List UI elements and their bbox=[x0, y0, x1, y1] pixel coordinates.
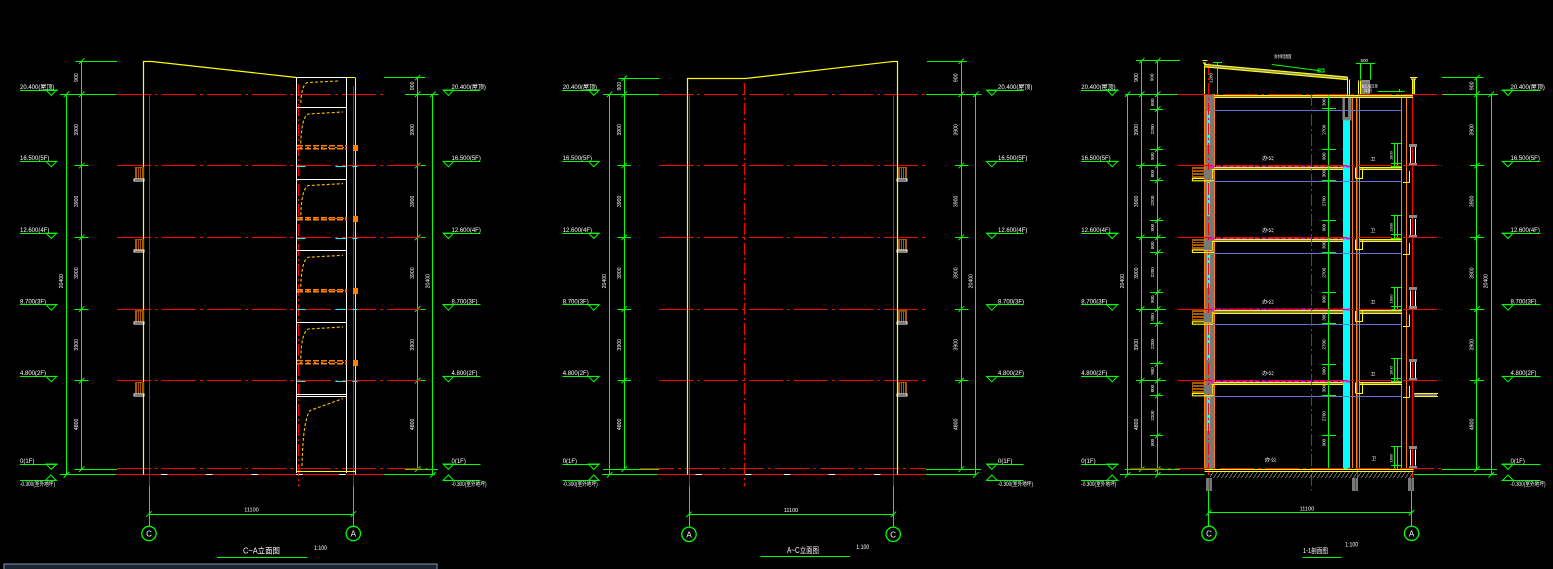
svg-text:卫: 卫 bbox=[1371, 156, 1377, 161]
svg-text:办公: 办公 bbox=[1262, 370, 1274, 377]
svg-text:900: 900 bbox=[1150, 223, 1155, 231]
svg-text:11100: 11100 bbox=[244, 508, 258, 514]
svg-text:900: 900 bbox=[1150, 295, 1155, 303]
svg-text:3900: 3900 bbox=[617, 267, 623, 279]
svg-text:4.800(2F): 4.800(2F) bbox=[1081, 371, 1107, 377]
svg-text:0(1F): 0(1F) bbox=[1511, 459, 1525, 465]
svg-text:12.600(4F): 12.600(4F) bbox=[452, 228, 481, 234]
svg-text:4800: 4800 bbox=[410, 419, 416, 431]
svg-text:1800: 1800 bbox=[1388, 150, 1393, 160]
svg-text:3900: 3900 bbox=[410, 267, 416, 279]
svg-text:3900: 3900 bbox=[1469, 267, 1475, 279]
svg-text:20.400(屋顶): 20.400(屋顶) bbox=[998, 84, 1032, 91]
svg-text:800: 800 bbox=[1150, 313, 1155, 321]
svg-text:2700: 2700 bbox=[1321, 339, 1326, 350]
svg-text:1:100: 1:100 bbox=[1345, 543, 1359, 549]
svg-text:防水保温屋面: 防水保温屋面 bbox=[1274, 53, 1291, 60]
svg-text:2700: 2700 bbox=[1321, 267, 1326, 278]
svg-text:3900: 3900 bbox=[617, 339, 623, 351]
svg-text:900: 900 bbox=[954, 73, 960, 82]
svg-text:2200: 2200 bbox=[1150, 267, 1155, 278]
svg-text:A~C立面图: A~C立面图 bbox=[787, 545, 819, 555]
svg-text:4800: 4800 bbox=[74, 419, 80, 431]
svg-text:0(1F): 0(1F) bbox=[452, 459, 466, 465]
svg-text:3900: 3900 bbox=[74, 267, 80, 279]
svg-text:20400: 20400 bbox=[1120, 274, 1126, 289]
svg-text:8.700(3F): 8.700(3F) bbox=[998, 300, 1024, 306]
svg-text:4.800(2F): 4.800(2F) bbox=[563, 371, 589, 377]
svg-text:800: 800 bbox=[1150, 384, 1155, 392]
svg-text:12.600(4F): 12.600(4F) bbox=[20, 228, 49, 234]
svg-text:详图: 详图 bbox=[1364, 87, 1372, 94]
svg-text:C~A立面图: C~A立面图 bbox=[243, 546, 280, 556]
svg-text:12.600(4F): 12.600(4F) bbox=[1511, 228, 1540, 234]
svg-text:300: 300 bbox=[1321, 241, 1326, 249]
svg-text:900: 900 bbox=[1321, 223, 1326, 231]
svg-text:3900: 3900 bbox=[1469, 124, 1475, 136]
svg-text:4.800(2F): 4.800(2F) bbox=[1511, 371, 1537, 377]
svg-text:20.400(屋顶): 20.400(屋顶) bbox=[563, 84, 597, 91]
svg-text:4.800(2F): 4.800(2F) bbox=[452, 371, 478, 377]
svg-text:8.700(3F): 8.700(3F) bbox=[1511, 300, 1537, 306]
svg-text:900: 900 bbox=[1134, 73, 1140, 82]
svg-text:4800: 4800 bbox=[954, 419, 960, 431]
svg-text:20400: 20400 bbox=[969, 274, 975, 289]
svg-text:20400: 20400 bbox=[1484, 274, 1490, 289]
svg-text:16.500(5F): 16.500(5F) bbox=[1511, 156, 1540, 162]
svg-text:3900: 3900 bbox=[1134, 196, 1140, 208]
svg-text:卫: 卫 bbox=[1371, 371, 1377, 376]
svg-text:0(1F): 0(1F) bbox=[1081, 459, 1095, 465]
svg-text:办公: 办公 bbox=[1262, 155, 1274, 162]
svg-text:C: C bbox=[1206, 529, 1212, 538]
svg-text:3900: 3900 bbox=[617, 124, 623, 136]
svg-text:1800: 1800 bbox=[1388, 365, 1393, 375]
svg-text:20400: 20400 bbox=[59, 274, 65, 289]
svg-text:3900: 3900 bbox=[410, 196, 416, 208]
svg-text:800: 800 bbox=[1150, 169, 1155, 177]
svg-text:900: 900 bbox=[1150, 152, 1155, 160]
svg-text:3900: 3900 bbox=[74, 124, 80, 136]
svg-text:2700: 2700 bbox=[1321, 411, 1326, 422]
svg-text:8.700(3F): 8.700(3F) bbox=[20, 300, 46, 306]
svg-text:900: 900 bbox=[1321, 152, 1326, 160]
svg-text:11100: 11100 bbox=[1300, 506, 1314, 512]
svg-text:3900: 3900 bbox=[1469, 339, 1475, 351]
svg-text:16.500(5F): 16.500(5F) bbox=[452, 156, 481, 162]
svg-text:16.500(5F): 16.500(5F) bbox=[20, 156, 49, 162]
svg-text:20.400(屋顶): 20.400(屋顶) bbox=[452, 84, 486, 91]
svg-text:300: 300 bbox=[1321, 384, 1326, 392]
svg-text:800: 800 bbox=[1150, 241, 1155, 249]
svg-text:12.600(4F): 12.600(4F) bbox=[998, 228, 1027, 234]
svg-text:500: 500 bbox=[1361, 58, 1369, 63]
svg-text:A: A bbox=[686, 530, 692, 539]
svg-text:A: A bbox=[1409, 529, 1415, 538]
svg-text:20.400(屋顶): 20.400(屋顶) bbox=[1511, 84, 1545, 91]
svg-text:900: 900 bbox=[1321, 438, 1326, 446]
svg-text:900: 900 bbox=[1149, 73, 1154, 81]
svg-text:8.700(3F): 8.700(3F) bbox=[563, 300, 589, 306]
svg-text:办公: 办公 bbox=[1262, 227, 1274, 234]
svg-text:3900: 3900 bbox=[410, 339, 416, 351]
svg-text:3900: 3900 bbox=[1134, 267, 1140, 279]
svg-text:-0.300(室外地坪): -0.300(室外地坪) bbox=[1081, 480, 1116, 488]
svg-text:4.800(2F): 4.800(2F) bbox=[20, 371, 46, 377]
svg-text:3900: 3900 bbox=[1134, 124, 1140, 136]
svg-text:3900: 3900 bbox=[410, 124, 416, 136]
svg-text:1:100: 1:100 bbox=[856, 545, 870, 551]
svg-text:-0.300(室外地坪): -0.300(室外地坪) bbox=[998, 480, 1033, 488]
svg-text:4800: 4800 bbox=[1469, 419, 1475, 431]
svg-text:卫: 卫 bbox=[1371, 228, 1377, 233]
svg-text:1:100: 1:100 bbox=[314, 546, 328, 552]
svg-text:4800: 4800 bbox=[617, 419, 623, 431]
svg-text:900: 900 bbox=[1150, 367, 1155, 375]
svg-text:20400: 20400 bbox=[602, 274, 608, 289]
svg-text:8.700(3F): 8.700(3F) bbox=[1081, 300, 1107, 306]
svg-text:20.400(屋顶): 20.400(屋顶) bbox=[1081, 84, 1115, 91]
svg-text:900: 900 bbox=[617, 82, 623, 91]
svg-text:900: 900 bbox=[1469, 81, 1475, 90]
svg-text:3900: 3900 bbox=[74, 339, 80, 351]
svg-text:1800: 1800 bbox=[1388, 294, 1393, 304]
svg-text:12.600(4F): 12.600(4F) bbox=[563, 228, 592, 234]
svg-text:1280: 1280 bbox=[1208, 72, 1213, 83]
svg-text:卫: 卫 bbox=[1371, 456, 1377, 461]
svg-text:3900: 3900 bbox=[617, 196, 623, 208]
svg-text:3900: 3900 bbox=[954, 196, 960, 208]
svg-text:0(1F): 0(1F) bbox=[998, 459, 1012, 465]
svg-text:办公: 办公 bbox=[1262, 299, 1274, 306]
svg-text:16.500(5F): 16.500(5F) bbox=[563, 156, 592, 162]
svg-text:1-1剖面图: 1-1剖面图 bbox=[1303, 546, 1328, 555]
svg-text:-0.300(室外地坪): -0.300(室外地坪) bbox=[452, 480, 487, 488]
svg-text:3900: 3900 bbox=[954, 339, 960, 351]
svg-text:900: 900 bbox=[410, 81, 416, 90]
svg-text:3900: 3900 bbox=[1469, 196, 1475, 208]
svg-text:C: C bbox=[146, 530, 152, 539]
svg-text:0(1F): 0(1F) bbox=[20, 459, 34, 465]
svg-text:-0.300(室外地坪): -0.300(室外地坪) bbox=[1511, 480, 1546, 488]
svg-text:2700: 2700 bbox=[1321, 196, 1326, 207]
svg-text:0(1F): 0(1F) bbox=[563, 459, 577, 465]
svg-text:3900: 3900 bbox=[954, 124, 960, 136]
svg-text:2700: 2700 bbox=[1321, 124, 1326, 135]
svg-text:A: A bbox=[351, 530, 357, 539]
svg-text:1800: 1800 bbox=[1388, 453, 1393, 463]
svg-text:2200: 2200 bbox=[1150, 410, 1155, 421]
svg-text:16.500(5F): 16.500(5F) bbox=[1081, 156, 1110, 162]
svg-text:-0.300(室外地坪): -0.300(室外地坪) bbox=[20, 480, 55, 488]
svg-text:8.700(3F): 8.700(3F) bbox=[452, 300, 478, 306]
svg-text:3900: 3900 bbox=[954, 267, 960, 279]
svg-text:300: 300 bbox=[1321, 169, 1326, 177]
svg-text:300: 300 bbox=[1321, 98, 1326, 106]
svg-text:4800: 4800 bbox=[1134, 419, 1140, 431]
svg-text:20400: 20400 bbox=[426, 274, 432, 289]
svg-text:20.400(屋顶): 20.400(屋顶) bbox=[20, 84, 54, 91]
svg-text:900: 900 bbox=[74, 73, 80, 82]
svg-text:900: 900 bbox=[1321, 295, 1326, 303]
svg-text:4.800(2F): 4.800(2F) bbox=[998, 371, 1024, 377]
svg-text:11100: 11100 bbox=[784, 508, 798, 514]
svg-text:3900: 3900 bbox=[74, 196, 80, 208]
svg-text:1800: 1800 bbox=[1388, 222, 1393, 232]
svg-text:800: 800 bbox=[1150, 98, 1155, 106]
svg-text:900: 900 bbox=[1150, 438, 1155, 446]
svg-text:-0.300(室外地坪): -0.300(室外地坪) bbox=[563, 480, 598, 488]
svg-text:2200: 2200 bbox=[1150, 338, 1155, 349]
svg-text:C: C bbox=[890, 530, 896, 539]
svg-text:2200: 2200 bbox=[1150, 124, 1155, 135]
svg-text:900: 900 bbox=[1321, 367, 1326, 375]
svg-text:办公: 办公 bbox=[1265, 457, 1277, 464]
svg-text:2200: 2200 bbox=[1150, 195, 1155, 206]
svg-text:3900: 3900 bbox=[1134, 339, 1140, 351]
svg-text:卫: 卫 bbox=[1371, 300, 1377, 305]
svg-text:16.500(5F): 16.500(5F) bbox=[998, 156, 1027, 162]
svg-text:12.600(4F): 12.600(4F) bbox=[1081, 228, 1110, 234]
svg-text:300: 300 bbox=[1321, 313, 1326, 321]
